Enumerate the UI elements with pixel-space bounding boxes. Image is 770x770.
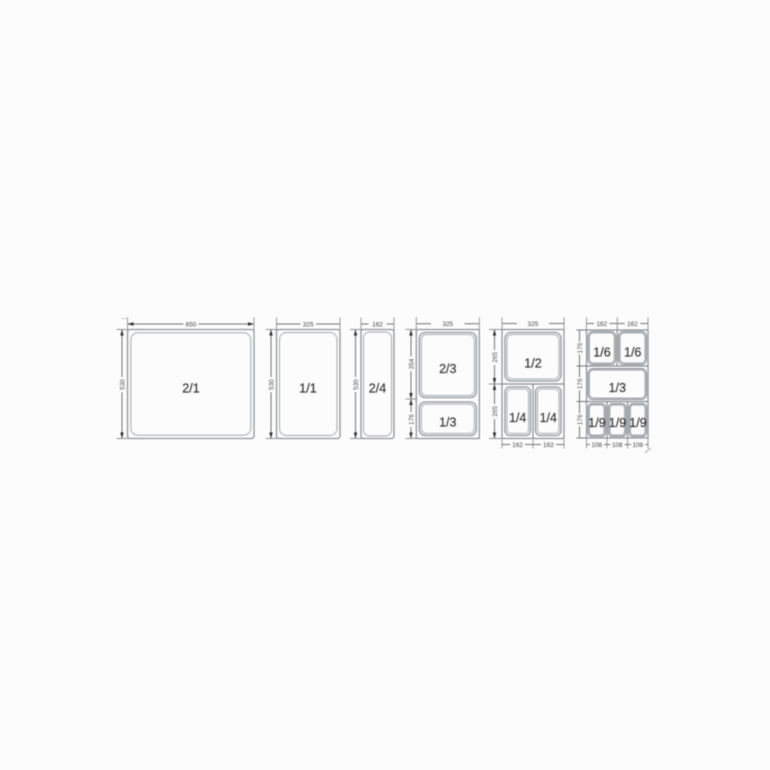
svg-text:1/1: 1/1 xyxy=(299,382,316,396)
svg-text:1/4: 1/4 xyxy=(509,411,526,425)
svg-text:108: 108 xyxy=(632,442,643,449)
svg-text:162: 162 xyxy=(543,442,554,449)
svg-text:2/4: 2/4 xyxy=(369,382,386,396)
svg-text:2/1: 2/1 xyxy=(182,382,199,396)
svg-text:2/3: 2/3 xyxy=(439,362,456,376)
svg-text:325: 325 xyxy=(528,321,539,328)
svg-text:176: 176 xyxy=(577,378,584,389)
svg-text:162: 162 xyxy=(512,442,523,449)
svg-text:108: 108 xyxy=(591,442,602,449)
svg-text:162: 162 xyxy=(627,321,638,328)
svg-text:1/9: 1/9 xyxy=(629,416,646,430)
svg-text:176: 176 xyxy=(408,414,415,425)
svg-text:176: 176 xyxy=(577,414,584,425)
svg-text:530: 530 xyxy=(268,379,275,390)
svg-text:176: 176 xyxy=(577,342,584,353)
svg-text:1/6: 1/6 xyxy=(593,345,610,359)
svg-text:1/4: 1/4 xyxy=(540,411,557,425)
svg-text:162: 162 xyxy=(372,321,383,328)
svg-text:1/2: 1/2 xyxy=(524,356,541,370)
svg-text:325: 325 xyxy=(442,321,453,328)
svg-text:162: 162 xyxy=(596,321,607,328)
svg-text:1/3: 1/3 xyxy=(609,381,626,395)
svg-text:1/9: 1/9 xyxy=(609,416,626,430)
svg-text:650: 650 xyxy=(186,321,197,328)
svg-text:325: 325 xyxy=(303,321,314,328)
svg-text:1/9: 1/9 xyxy=(588,416,605,430)
svg-text:265: 265 xyxy=(492,352,499,363)
svg-text:108: 108 xyxy=(612,442,623,449)
svg-text:354: 354 xyxy=(408,358,415,369)
svg-text:1/6: 1/6 xyxy=(624,345,641,359)
svg-text:530: 530 xyxy=(119,379,126,390)
svg-text:265: 265 xyxy=(492,406,499,417)
svg-text:530: 530 xyxy=(353,379,360,390)
svg-text:1/3: 1/3 xyxy=(439,416,456,430)
